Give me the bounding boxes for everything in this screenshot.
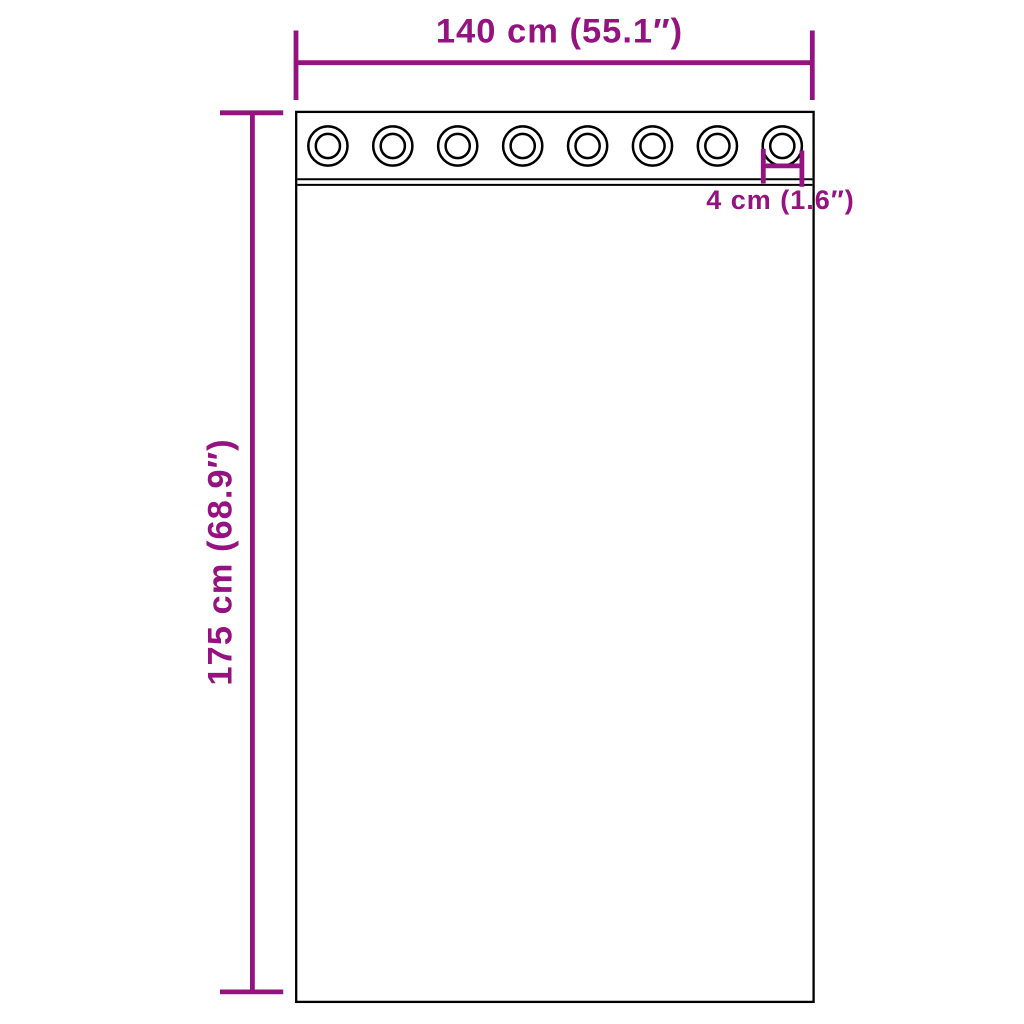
svg-text:175 cm (68.9″): 175 cm (68.9″) xyxy=(202,438,240,685)
svg-text:4 cm (1.6″): 4 cm (1.6″) xyxy=(706,185,855,215)
svg-text:140 cm (55.1″): 140 cm (55.1″) xyxy=(436,13,683,51)
